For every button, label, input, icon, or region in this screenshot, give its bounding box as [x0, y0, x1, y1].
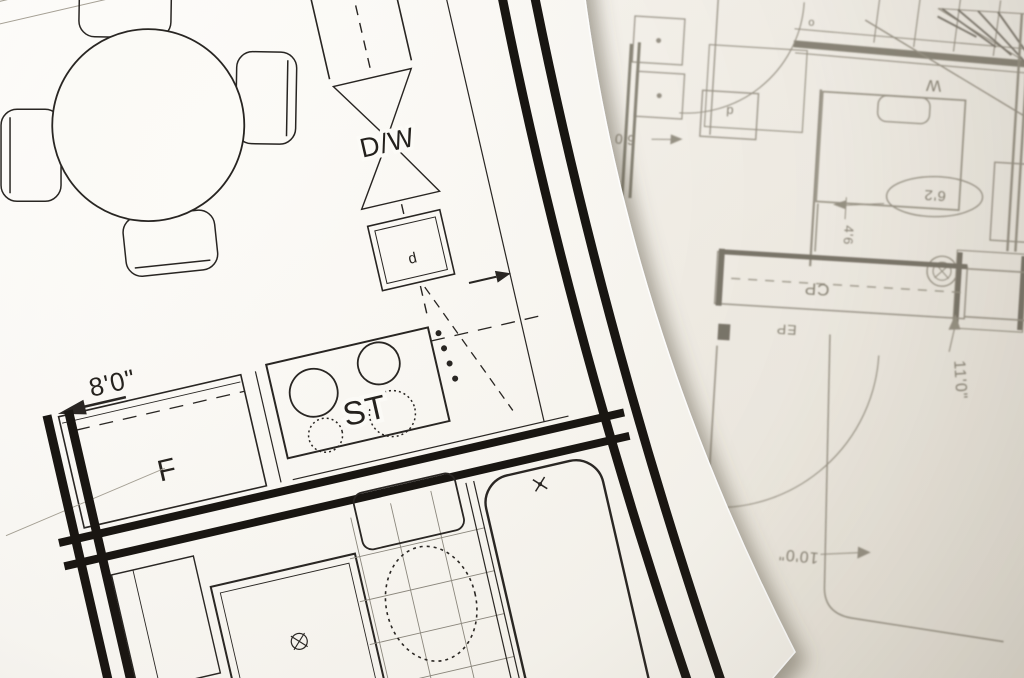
blueprint-photo-svg: W o 6'2 4'6: [0, 0, 1024, 678]
blueprint-photo: W o 6'2 4'6: [0, 0, 1024, 678]
vignette-overlay: [0, 0, 1024, 678]
